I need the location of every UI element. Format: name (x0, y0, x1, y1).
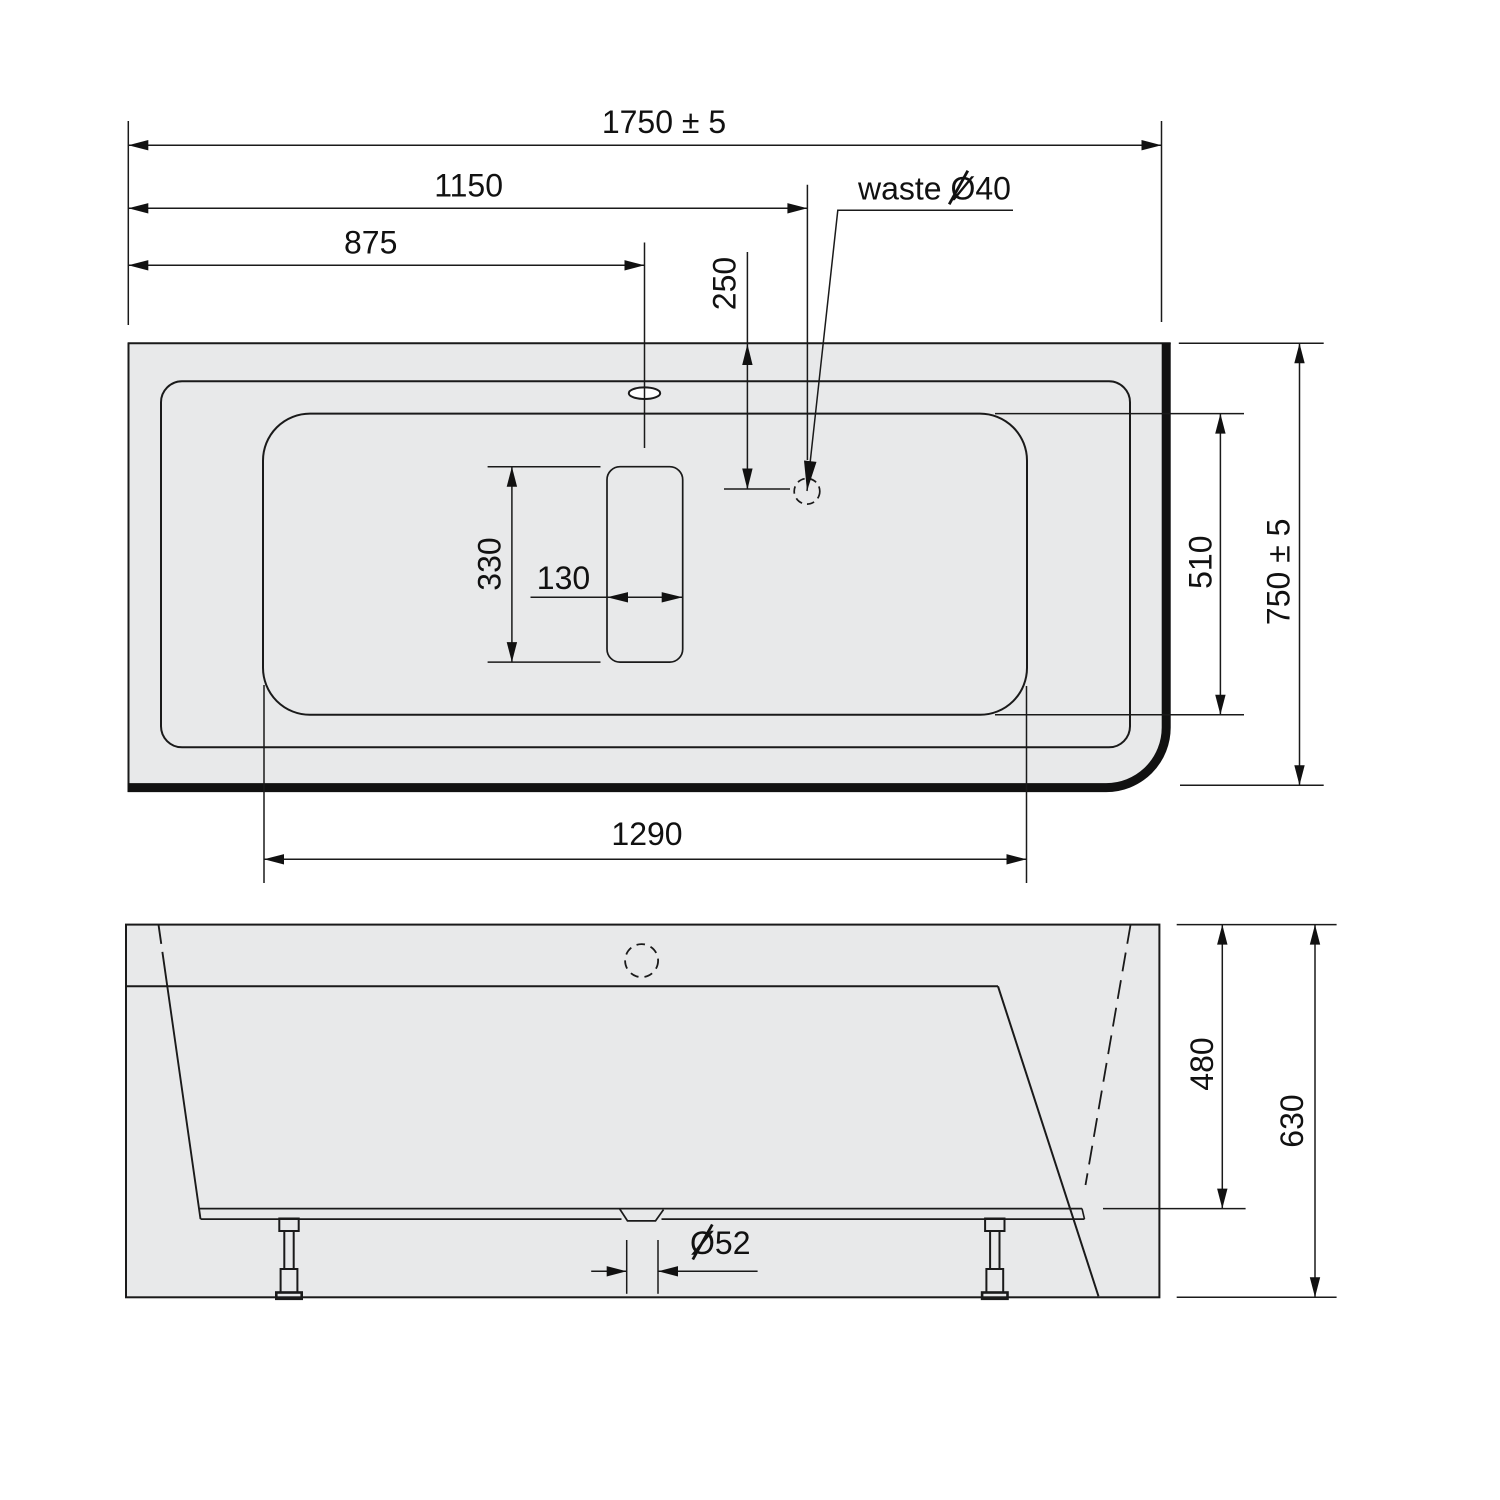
svg-text:Ø52: Ø52 (690, 1225, 750, 1261)
svg-text:1150: 1150 (434, 168, 503, 204)
svg-text:750 ± 5: 750 ± 5 (1261, 519, 1297, 626)
svg-text:480: 480 (1184, 1037, 1220, 1090)
svg-text:1750 ± 5: 1750 ± 5 (602, 104, 726, 140)
svg-text:1290: 1290 (611, 816, 682, 852)
svg-text:330: 330 (472, 537, 508, 590)
svg-text:510: 510 (1183, 536, 1219, 589)
svg-text:waste Ø40: waste Ø40 (857, 171, 1011, 207)
svg-text:630: 630 (1274, 1094, 1310, 1147)
svg-text:875: 875 (344, 225, 397, 261)
svg-text:250: 250 (707, 257, 743, 310)
svg-text:130: 130 (537, 560, 590, 596)
